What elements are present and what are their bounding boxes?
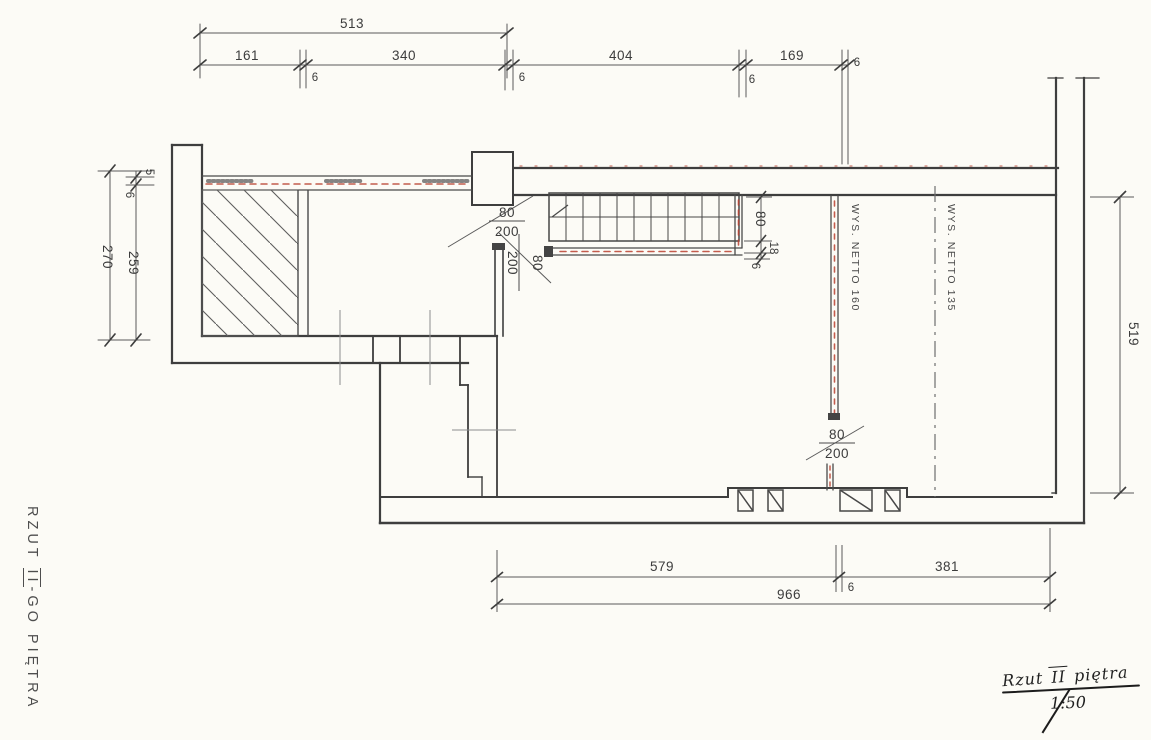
title-name-post: piętra xyxy=(1067,663,1129,686)
dim-label-18: 18 xyxy=(767,242,779,255)
door1-height: 200 xyxy=(495,224,519,239)
wall-pillar-top xyxy=(472,152,513,205)
dim-label-6b: 6 xyxy=(519,72,525,84)
stairwell xyxy=(549,193,739,241)
dim-label-169: 169 xyxy=(780,48,804,63)
dim-label-381: 381 xyxy=(935,559,959,574)
stair-thin-wall xyxy=(544,195,742,257)
dim-label-6a: 6 xyxy=(312,72,318,84)
hatch-area xyxy=(202,190,308,336)
dim-label-6e: 6 xyxy=(123,192,135,198)
interior-walls xyxy=(373,243,505,497)
dim-label-6f: 6 xyxy=(749,263,761,269)
door2-width: 80 xyxy=(530,255,545,271)
dim-label-404: 404 xyxy=(609,48,633,63)
dim-label-513: 513 xyxy=(340,16,364,31)
side-title-numeral: II xyxy=(23,568,41,586)
title-name-numeral: II xyxy=(1049,666,1069,687)
note-wys-netto-160: WYS. NETTO 160 xyxy=(849,204,861,312)
dim-label-270: 270 xyxy=(100,245,115,269)
door3-width: 80 xyxy=(829,427,845,442)
side-title-pre: RZUT xyxy=(24,506,40,568)
door2-height: 200 xyxy=(505,251,520,275)
bottom-dimensions xyxy=(491,528,1056,612)
side-title-post: -GO PIĘTRA xyxy=(24,587,40,711)
axis-marks xyxy=(340,310,516,430)
door-annotation-2: 80 200 xyxy=(499,233,551,291)
top-dimension-labels: 513 161 340 404 169 6 6 6 6 xyxy=(235,16,860,86)
dim-label-6c: 6 xyxy=(749,74,755,86)
thin-insulated-wall-top xyxy=(202,166,1050,190)
dim-label-340: 340 xyxy=(392,48,416,63)
drawing-sheet: 513 161 340 404 169 6 6 6 6 270 259 5 6 xyxy=(0,0,1151,740)
top-dimensions xyxy=(194,24,854,164)
door3-height: 200 xyxy=(825,446,849,461)
dim-label-5: 5 xyxy=(143,169,155,175)
dim-label-519: 519 xyxy=(1126,322,1141,346)
title-name-pre: Rzut xyxy=(1002,668,1051,690)
side-title: RZUT II-GO PIĘTRA xyxy=(24,506,40,706)
dim-label-6d: 6 xyxy=(854,57,860,69)
dim-label-161: 161 xyxy=(235,48,259,63)
floor-plan-drawing: 513 161 340 404 169 6 6 6 6 270 259 5 6 xyxy=(0,0,1151,740)
dim-label-579: 579 xyxy=(650,559,674,574)
exterior-walls xyxy=(172,78,1099,523)
title-block: Rzut II piętra 1:50 xyxy=(1002,666,1151,711)
roof-windows xyxy=(738,490,900,511)
note-wys-netto-135: WYS. NETTO 135 xyxy=(945,204,957,312)
dim-label-80-stair: 80 xyxy=(753,211,768,227)
dim-label-6g: 6 xyxy=(848,582,854,594)
bottom-dimension-labels: 579 381 6 966 xyxy=(650,559,959,602)
door-annotation-3: 80 200 xyxy=(806,426,864,461)
dim-label-259: 259 xyxy=(126,251,141,275)
door1-width: 80 xyxy=(499,205,515,220)
dim-label-966: 966 xyxy=(777,587,801,602)
